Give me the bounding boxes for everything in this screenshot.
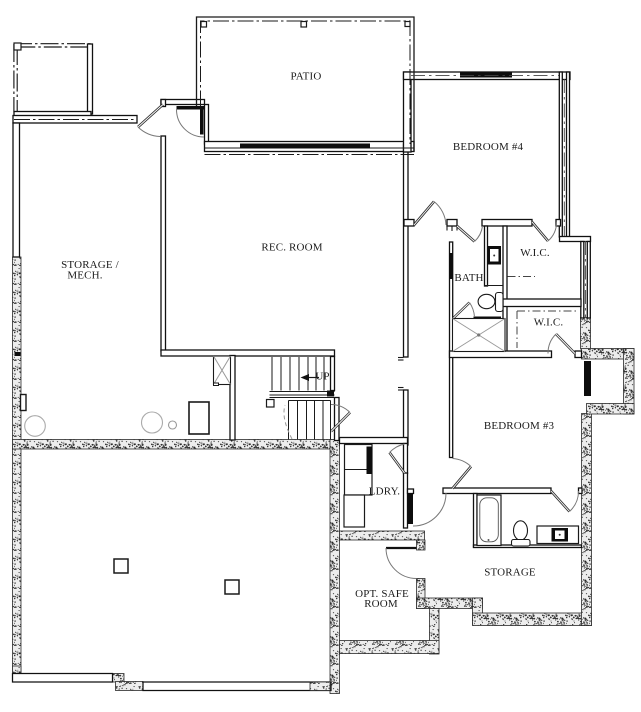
svg-text:BEDROOM #4: BEDROOM #4 [453, 141, 524, 153]
svg-text:W.I.C.: W.I.C. [534, 317, 564, 329]
svg-text:BATH: BATH [454, 272, 483, 284]
svg-text:ROOM: ROOM [364, 598, 398, 610]
svg-text:BEDROOM #3: BEDROOM #3 [484, 420, 555, 432]
svg-text:UP: UP [315, 371, 329, 383]
svg-text:MECH.: MECH. [67, 270, 102, 282]
svg-text:STORAGE: STORAGE [484, 567, 536, 579]
svg-text:LDRY.: LDRY. [369, 486, 401, 498]
svg-text:REC. ROOM: REC. ROOM [261, 242, 322, 254]
svg-text:W.I.C.: W.I.C. [520, 247, 550, 259]
svg-text:PATIO: PATIO [291, 71, 322, 83]
